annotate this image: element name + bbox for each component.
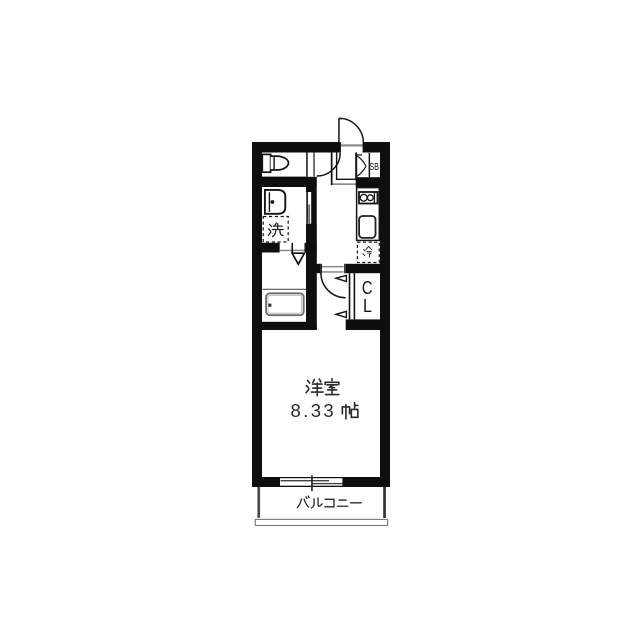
svg-text:L: L [363,295,372,316]
svg-text:8.33: 8.33 [291,400,337,421]
svg-text:SB: SB [369,161,379,173]
